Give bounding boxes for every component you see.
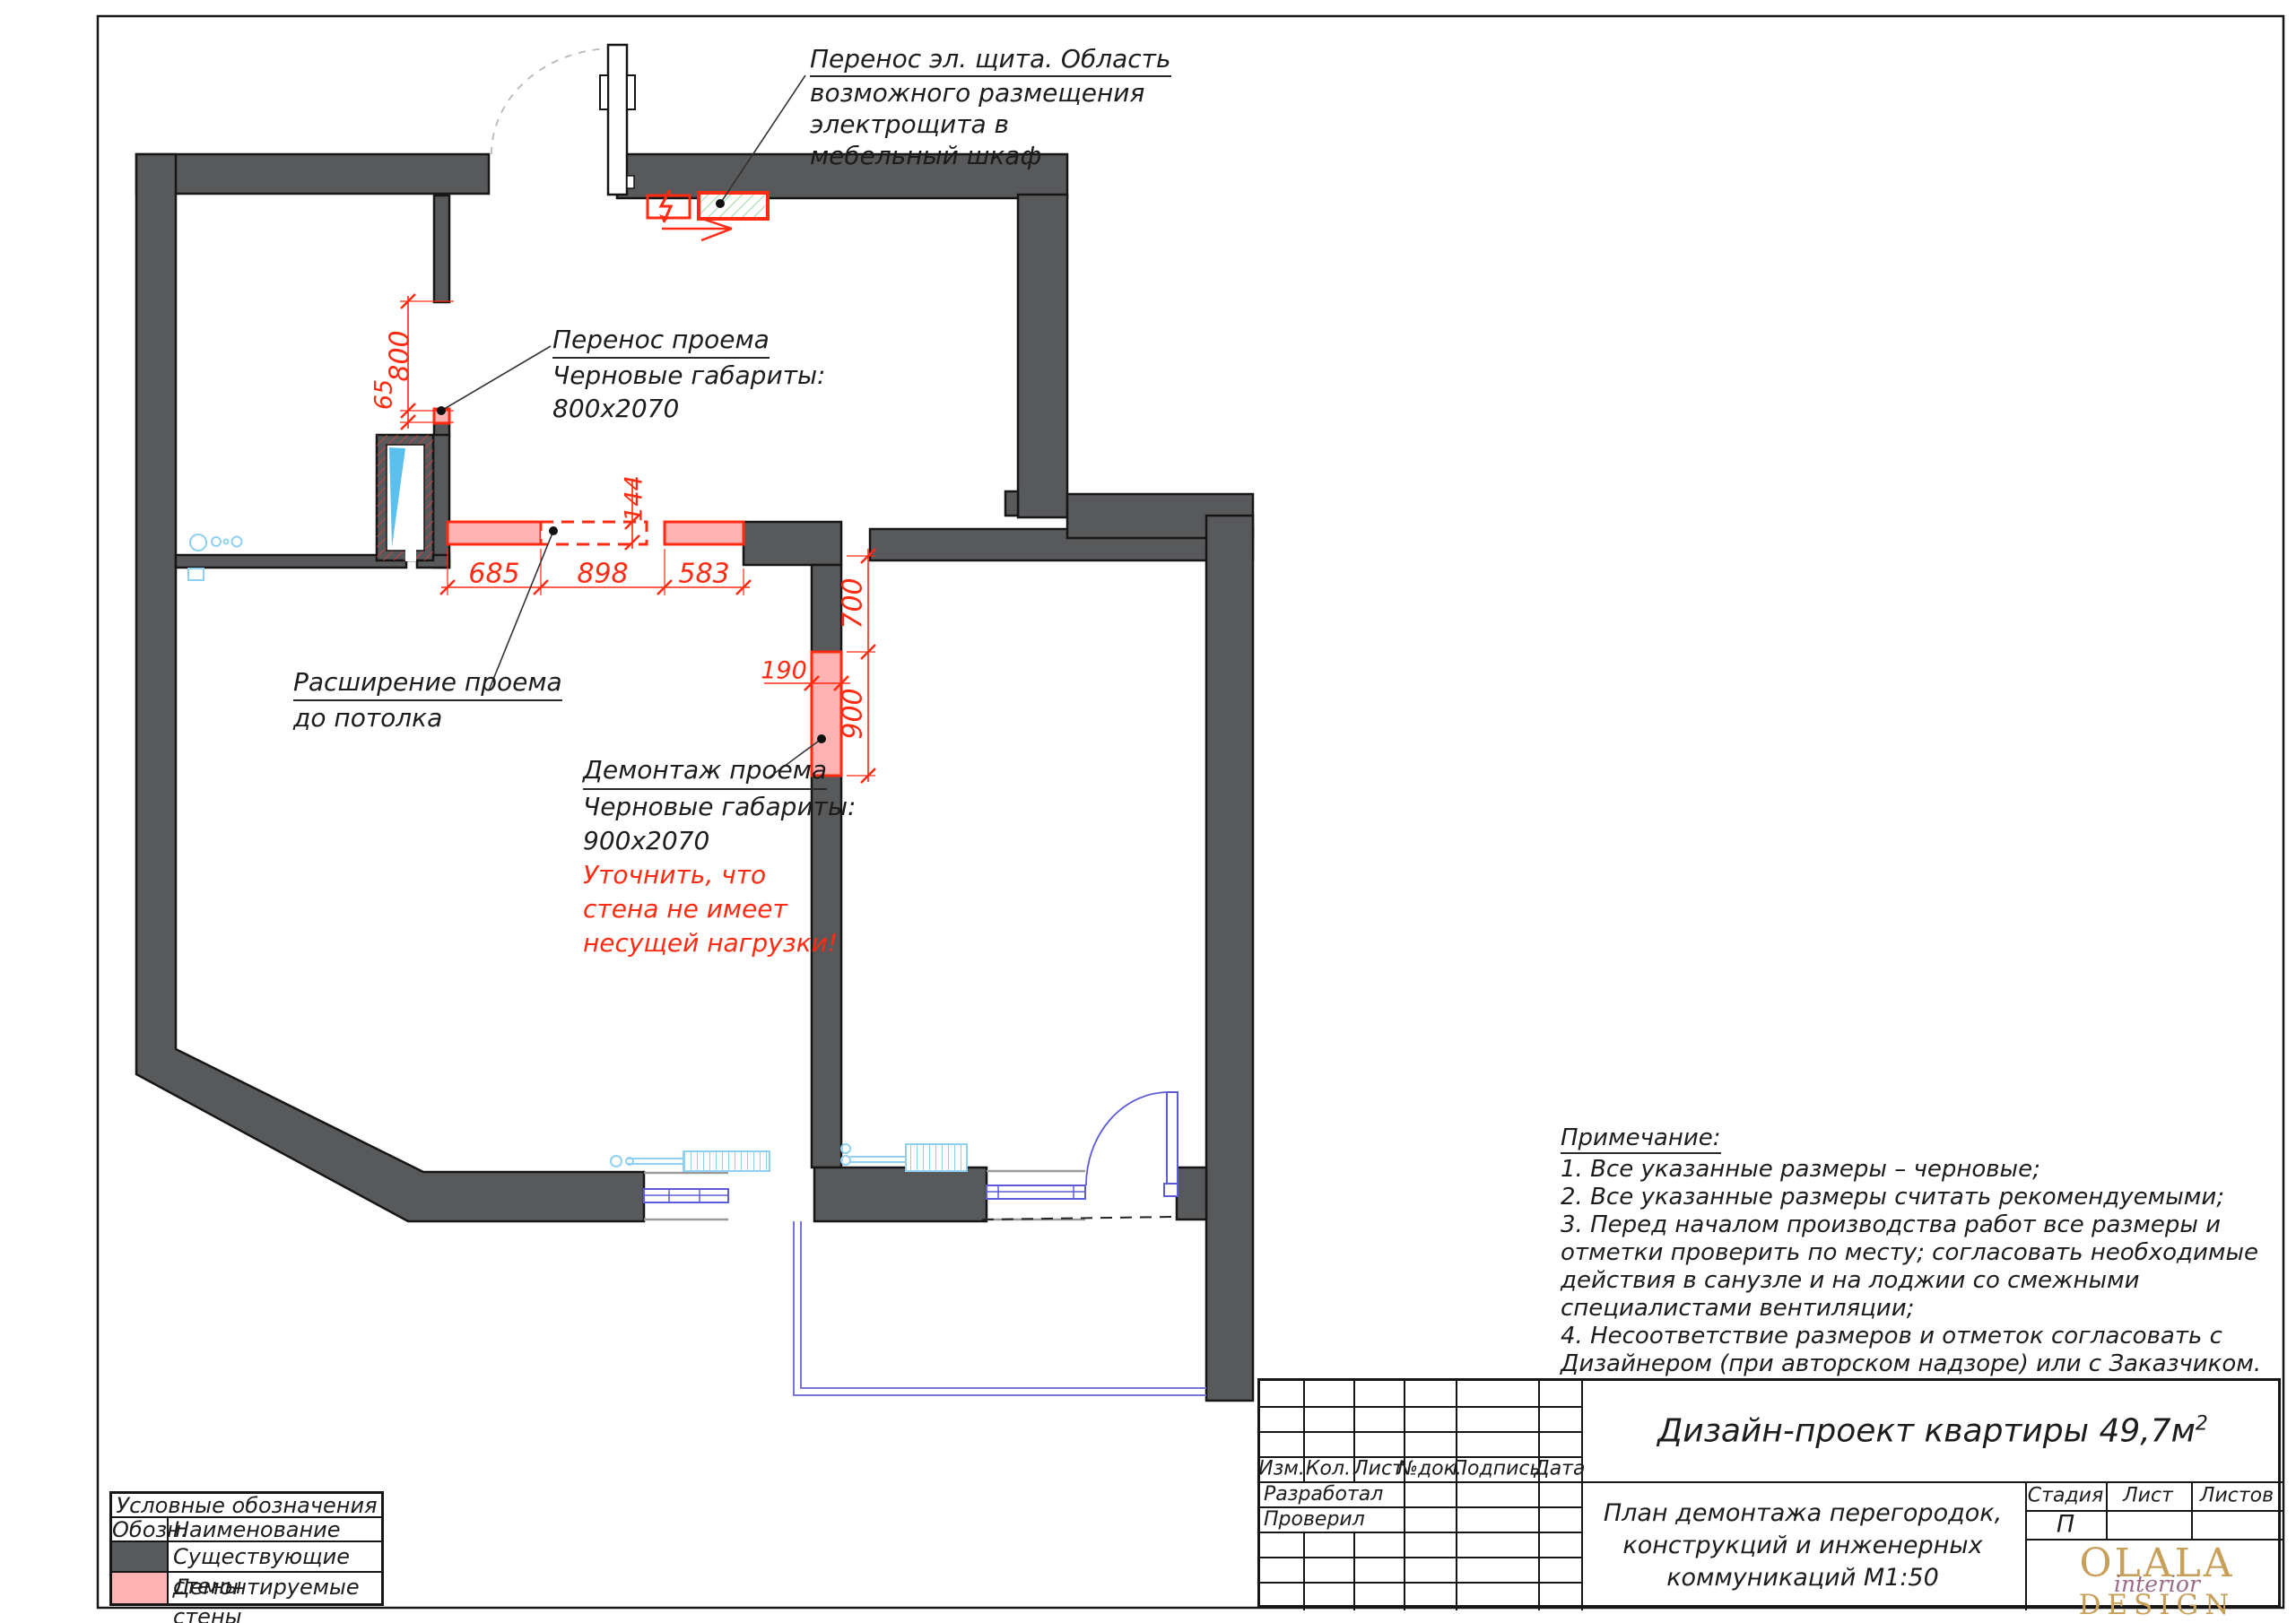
stamp-col-izm: Изм. [1258, 1458, 1305, 1480]
sink-icon [190, 534, 206, 551]
wall-bottom-pier [814, 1167, 987, 1221]
wall-central-right [1018, 195, 1067, 517]
dim-898: 898 [577, 559, 628, 590]
sheet-label: Лист [2123, 1485, 2173, 1507]
entry-door-swing-arc [491, 48, 609, 154]
legend-header: Условные обозначения [112, 1494, 381, 1518]
dim-190: 190 [761, 657, 807, 685]
legend-table: Условные обозначения Обозн. Наименование… [109, 1491, 384, 1606]
electrical-panel [648, 190, 768, 240]
duct-shaft [377, 435, 433, 561]
legend-col-name: Наименование [173, 1518, 378, 1541]
dim-583: 583 [678, 559, 729, 590]
wall-stub [434, 195, 449, 302]
logo-design: DESIGN [2049, 1592, 2265, 1619]
legend-row-demolished: Демонтируемые стены [112, 1573, 381, 1603]
annotation-demolish-opening: Демонтаж проема Черновые габариты: 900x2… [583, 753, 857, 960]
wall-balcony-jamb [1177, 1167, 1206, 1219]
dim-685: 685 [468, 559, 519, 590]
sheets-label: Листов [2200, 1485, 2274, 1507]
annotation-electrical-panel: Перенос эл. щита. Область возможного раз… [810, 43, 1171, 171]
drawing-sheet: Перенос эл. щита. Область возможного раз… [0, 0, 2296, 1623]
dim-900: 900 [838, 688, 869, 739]
wall-top-left [136, 154, 489, 194]
notes-title: Примечание: [1561, 1124, 1721, 1154]
legend-col-symbol: Обозн. [112, 1518, 169, 1541]
dim-800: 800 [385, 330, 416, 381]
wall-far-right [1206, 516, 1253, 1401]
electrical-panel-zone [699, 193, 768, 219]
balcony-door-leaf [1167, 1092, 1178, 1185]
fixture-box [188, 568, 204, 580]
balcony-door [982, 1092, 1178, 1219]
existing-wall-swatch [112, 1542, 169, 1571]
stamp-col-data: Дата [1535, 1458, 1586, 1480]
annotation-widen-opening: Расширение проема до потолка [293, 665, 562, 734]
stage-label: Стадия [2028, 1485, 2103, 1507]
wall-notch [1005, 491, 1018, 516]
radiator [683, 1151, 770, 1171]
stamp-role-checked: Проверил [1264, 1508, 1365, 1531]
stamp-col-list: Лист [1353, 1458, 1404, 1480]
entry-door-leaf [608, 45, 627, 195]
wall-bath-bottom [176, 555, 406, 568]
balcony-door-swing-arc [1086, 1092, 1167, 1185]
legend-columns: Обозн. Наименование [112, 1518, 381, 1542]
sheet-title: План демонтажа перегородок, конструкций … [1604, 1497, 2002, 1594]
notes-block: Примечание: 1. Все указанные размеры – ч… [1561, 1124, 2261, 1378]
demolished-wall-swatch [112, 1573, 169, 1603]
wall-junction-pier [744, 522, 841, 565]
demolished-band-left [448, 522, 541, 544]
dim-700: 700 [838, 577, 869, 629]
loggia-outline [794, 1221, 1206, 1395]
stamp-col-podpis: Подпись [1453, 1458, 1542, 1480]
demolished-band-right [665, 522, 744, 544]
stamp-col-kol: Кол. [1306, 1458, 1351, 1480]
dim-65: 65 [370, 379, 398, 410]
studio-logo: OLALA interior DESIGN [2049, 1544, 2265, 1619]
project-title: Дизайн-проект квартиры 49,7м2 [1657, 1413, 2208, 1450]
stage-value: П [2057, 1511, 2074, 1539]
stamp-role-developed: Разработал [1264, 1483, 1383, 1506]
annotation-opening-move: Перенос проема Черновые габариты: 800x20… [552, 323, 826, 425]
title-block: Изм. Кол. Лист №док. Подпись Дата Разраб… [1257, 1378, 2281, 1608]
wall-shaft-right [433, 435, 449, 568]
legend-row-existing: Существующие стены [112, 1542, 381, 1573]
radiator [906, 1144, 967, 1171]
dim-144: 144 [621, 475, 648, 522]
radiators [611, 1144, 967, 1171]
entry-door [491, 45, 635, 195]
